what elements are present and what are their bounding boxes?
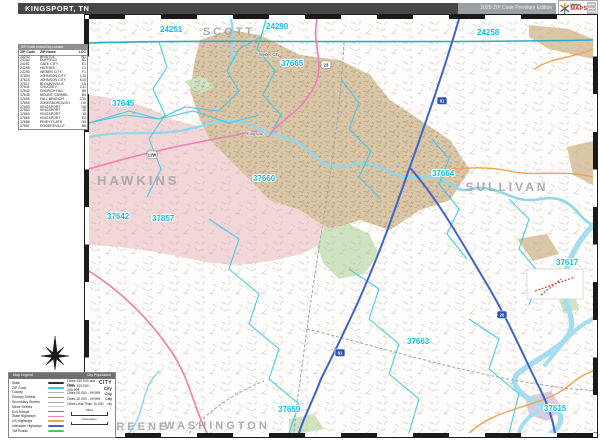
- legend-city-row: Cities 10,000 - 49,999City: [67, 396, 112, 401]
- legend-line-swatch: [48, 425, 64, 427]
- legend-line-swatch: [48, 387, 64, 389]
- zip-code-label: 37665: [281, 59, 304, 68]
- us-highway-shield-icon: 23: [321, 61, 331, 69]
- zip-code-label: 37664: [432, 169, 455, 178]
- legend-items-column: StateZIP CodeCountyPrimary StreetsSecond…: [12, 381, 64, 434]
- zip-code-label: 37615: [544, 404, 567, 413]
- zip-code-label: 24290: [266, 22, 289, 31]
- svg-text:81: 81: [338, 351, 343, 356]
- interstate-shield-icon: 26: [497, 311, 507, 319]
- interstate-shield-icon: 81: [437, 97, 447, 105]
- table-row: 37857ROGERSVILLEB8: [19, 125, 87, 129]
- interstate-shield-icon: 81: [335, 349, 345, 357]
- legend-line-swatch: [48, 397, 64, 398]
- legend-item: Toll Roads: [12, 428, 64, 433]
- legend-line-swatch: [48, 420, 64, 422]
- legend-line-swatch: [48, 382, 64, 384]
- zip-code-label: 37659: [278, 405, 301, 414]
- edition-bar: 2020 ZIP Code Premium Edition: [458, 3, 556, 14]
- map-canvas[interactable]: SCOTTHAWKINSSULLIVANGREENEWASHINGTON2425…: [89, 19, 593, 433]
- legend-city-row: Cities 50,000 - 99,999City: [67, 391, 112, 396]
- legend-line-swatch: [48, 416, 64, 418]
- scale-bar: Miles: [67, 409, 112, 416]
- logo-star-icon: [560, 2, 569, 15]
- county-label: SULLIVAN: [465, 180, 548, 194]
- zip-code-label: 24251: [160, 25, 183, 34]
- zip-code-label: 37660: [253, 174, 276, 183]
- airport-box: [527, 269, 583, 299]
- zip-code-label: 24258: [477, 28, 500, 37]
- svg-text:23: 23: [324, 63, 329, 68]
- zip-table-body: 24202BRISTOLN124244DUFFIELDB124251GATE C…: [19, 55, 87, 129]
- logo-bottom-text: MAPS: [570, 7, 587, 13]
- legend-line-swatch: [48, 430, 64, 432]
- svg-text:81: 81: [440, 99, 445, 104]
- county-label: WASHINGTON: [164, 420, 270, 432]
- svg-text:11W: 11W: [148, 153, 156, 158]
- zip-index-panel: ZIP Code Index/City Locator ZIP CodeZIP …: [18, 44, 88, 130]
- zip-code-label: 37857: [152, 214, 175, 223]
- zip-code-label: 37617: [556, 258, 579, 267]
- zip-code-label: 37645: [112, 99, 135, 108]
- scale-bar: Kilometers: [67, 418, 112, 425]
- page-title: KINGSPORT, TN: [25, 4, 89, 13]
- city-label: Weber City: [259, 52, 281, 57]
- zip-code-label: 37663: [407, 337, 430, 346]
- map-frame: SCOTTHAWKINSSULLIVANGREENEWASHINGTON2425…: [84, 14, 598, 438]
- county-label: HAWKINS: [97, 173, 179, 188]
- edition-label: 2020 ZIP Code Premium Edition: [480, 5, 552, 11]
- legend-line-swatch: [48, 411, 64, 412]
- county-label: SCOTT: [203, 26, 255, 38]
- zip-code-label: 37642: [107, 212, 130, 221]
- logo-side-panel: [587, 2, 596, 14]
- city-label: Kingsport: [247, 131, 266, 136]
- svg-text:26: 26: [500, 313, 505, 318]
- legend-city-row: Cities Less Than 10,000city: [67, 401, 112, 406]
- map-legend: Map Legend City Population StateZIP Code…: [8, 372, 116, 438]
- legend-cities-column: Cities 250,000 and OverCITYCities 100,00…: [64, 381, 112, 434]
- legend-title-left: Map Legend: [13, 373, 33, 379]
- legend-line-swatch: [48, 406, 64, 407]
- legend-line-swatch: [48, 392, 64, 393]
- map-title-bar: KINGSPORT, TN: [18, 3, 458, 14]
- us-highway-shield-icon: 11W: [147, 151, 157, 159]
- legend-line-swatch: [48, 402, 64, 403]
- legend-title-right: City Population: [87, 373, 111, 379]
